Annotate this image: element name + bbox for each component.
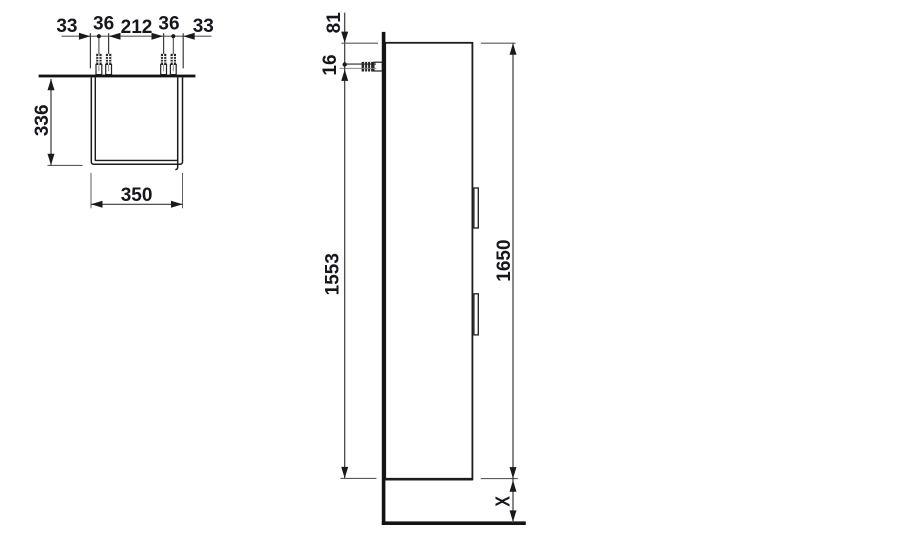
svg-text:1553: 1553 [322,253,343,295]
svg-text:336: 336 [32,104,53,136]
svg-text:81: 81 [324,12,345,34]
svg-text:33: 33 [56,16,77,37]
svg-text:36: 36 [93,14,114,35]
svg-text:36: 36 [158,14,179,35]
svg-text:33: 33 [193,16,214,37]
svg-text:350: 350 [121,185,153,206]
svg-text:16: 16 [320,54,341,75]
svg-text:X: X [492,496,514,507]
svg-text:1650: 1650 [494,239,515,281]
svg-text:212: 212 [121,17,153,38]
